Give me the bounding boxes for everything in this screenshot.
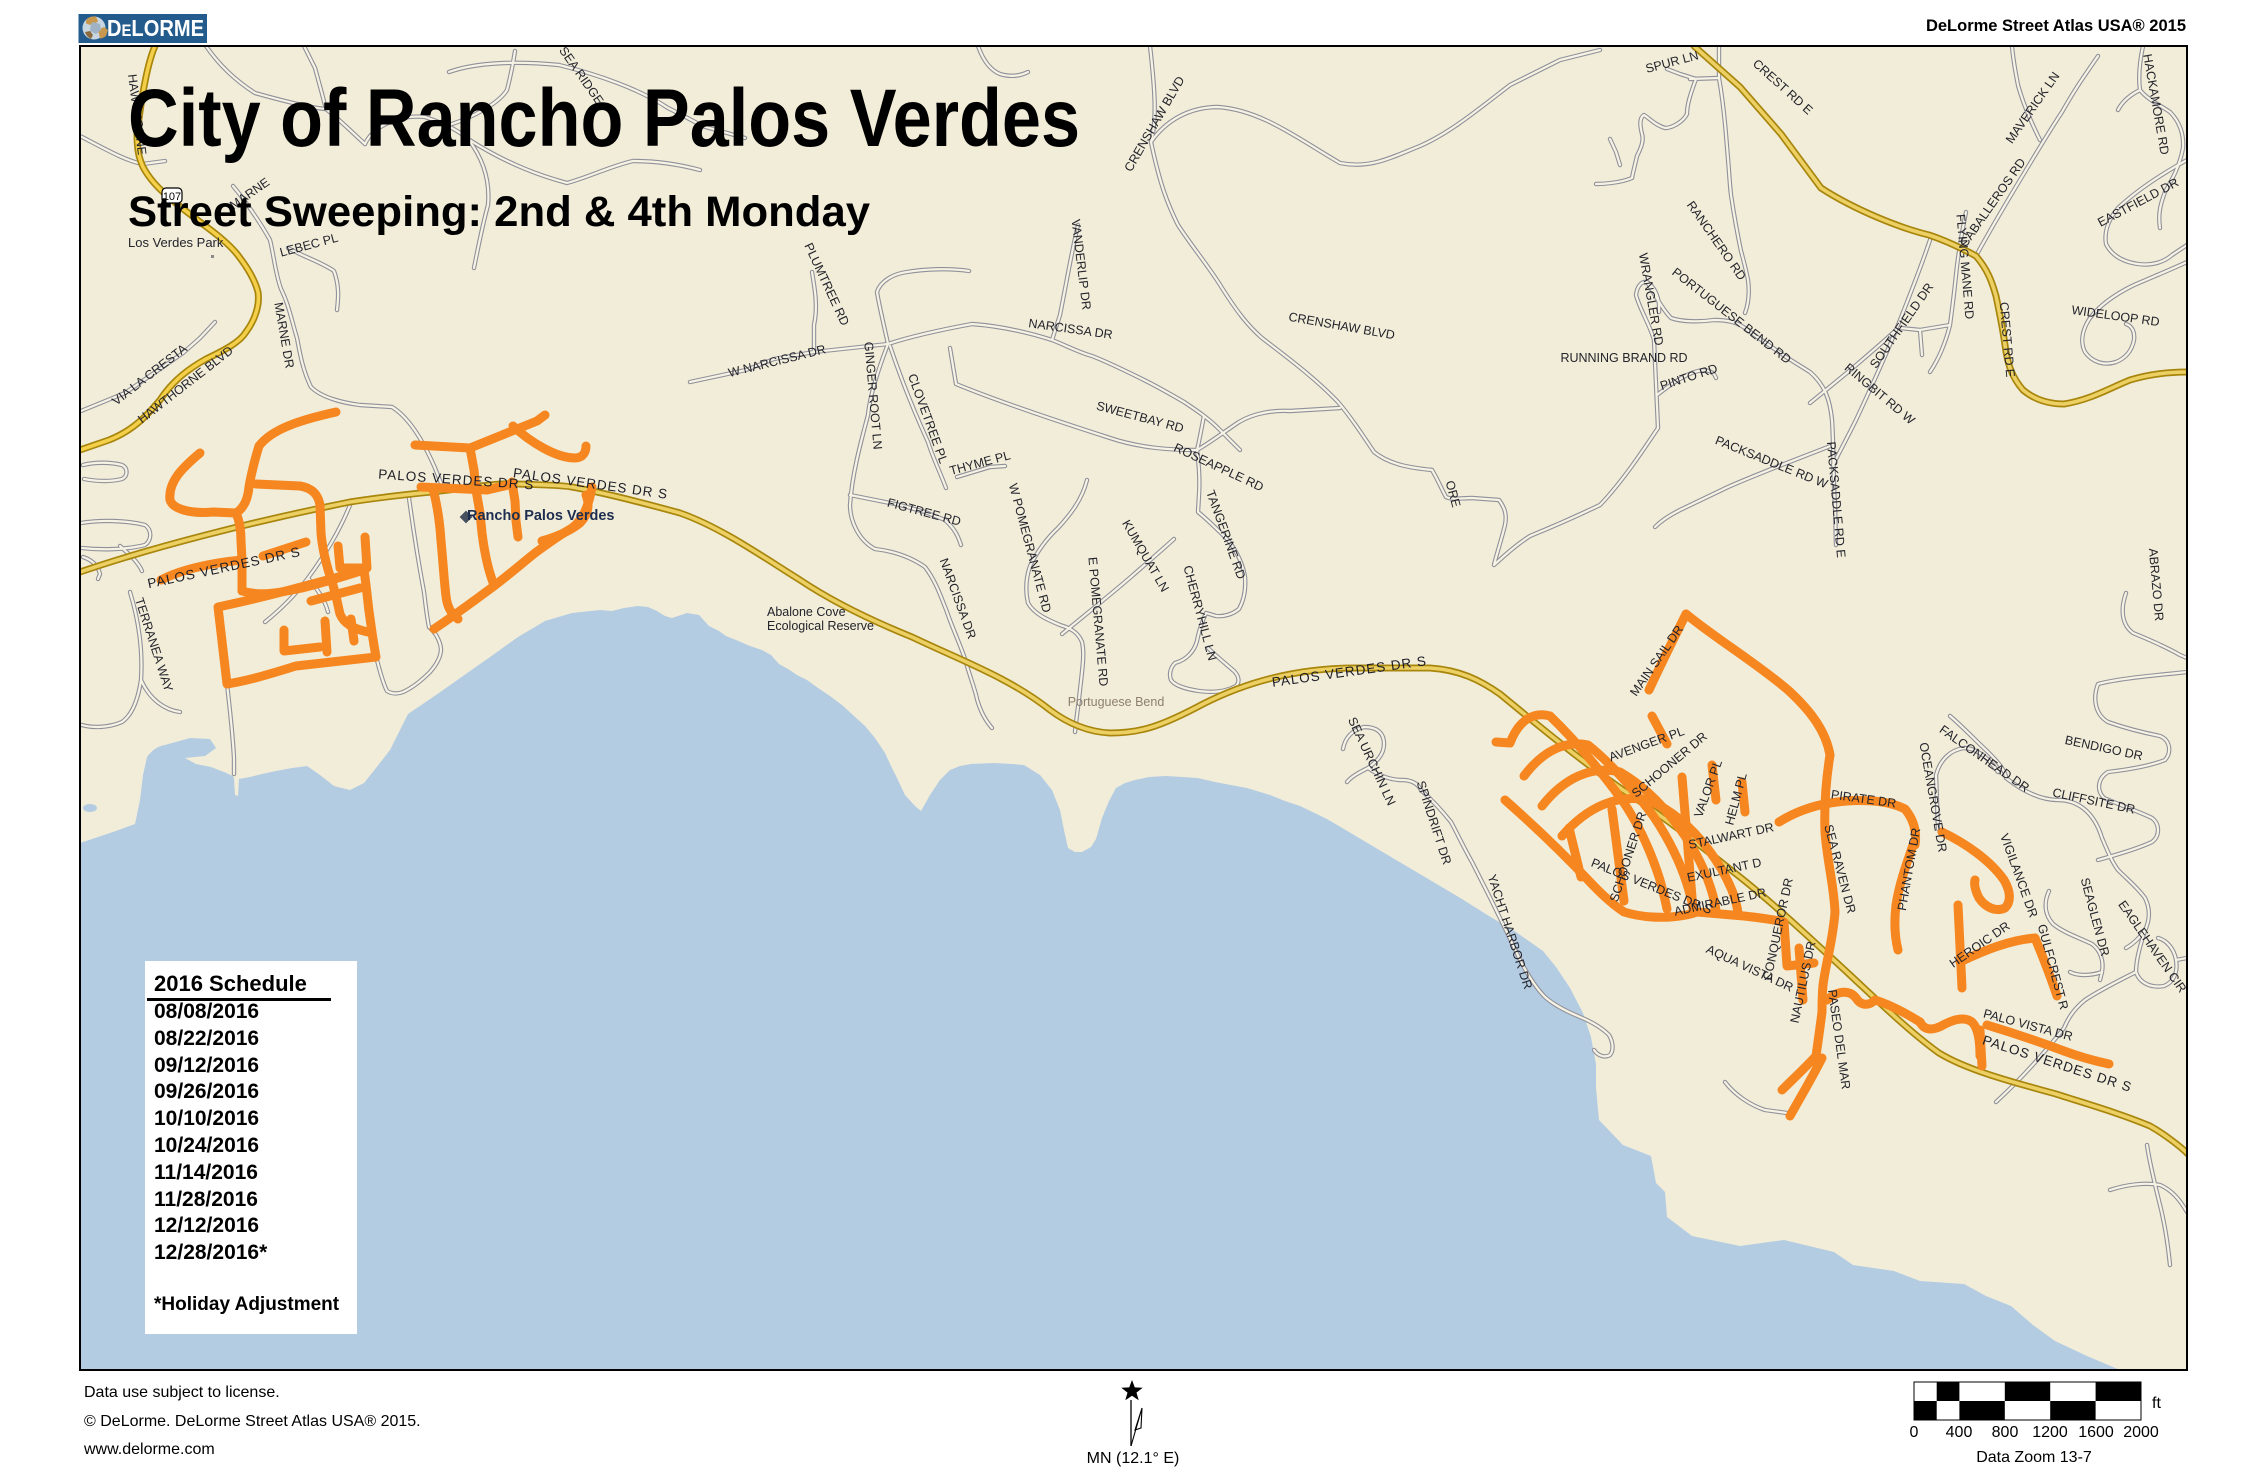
svg-text:*Holiday Adjustment: *Holiday Adjustment bbox=[154, 1294, 340, 1315]
svg-text:DeLorme Street Atlas USA® 2015: DeLorme Street Atlas USA® 2015 bbox=[1926, 17, 2186, 35]
svg-text:400: 400 bbox=[1946, 1424, 1973, 1441]
svg-text:09/12/2016: 09/12/2016 bbox=[154, 1054, 259, 1077]
svg-text:11/14/2016: 11/14/2016 bbox=[154, 1161, 258, 1184]
svg-text:City of Rancho Palos Verdes: City of Rancho Palos Verdes bbox=[128, 73, 1080, 164]
svg-text:2016 Schedule: 2016 Schedule bbox=[154, 971, 307, 996]
svg-text:Rancho Palos Verdes: Rancho Palos Verdes bbox=[467, 508, 614, 524]
svg-text:2000: 2000 bbox=[2123, 1424, 2159, 1441]
svg-text:1200: 1200 bbox=[2032, 1424, 2068, 1441]
svg-text:Data Zoom 13-7: Data Zoom 13-7 bbox=[1976, 1449, 2092, 1466]
svg-text:MN (12.1° E): MN (12.1° E) bbox=[1087, 1450, 1180, 1467]
svg-text:ft: ft bbox=[2152, 1395, 2161, 1412]
svg-text:12/12/2016: 12/12/2016 bbox=[154, 1214, 259, 1237]
svg-text:© DeLorme. DeLorme Street Atla: © DeLorme. DeLorme Street Atlas USA® 201… bbox=[84, 1413, 421, 1430]
svg-text:Street Sweeping: 2nd & 4th Mon: Street Sweeping: 2nd & 4th Monday bbox=[128, 188, 870, 236]
svg-text:08/22/2016: 08/22/2016 bbox=[154, 1027, 259, 1050]
svg-text:08/08/2016: 08/08/2016 bbox=[154, 1000, 259, 1023]
svg-text:Data use subject to license.: Data use subject to license. bbox=[84, 1384, 280, 1401]
svg-text:Abalone Cove: Abalone Cove bbox=[767, 605, 846, 619]
svg-text:10/24/2016: 10/24/2016 bbox=[154, 1134, 259, 1157]
svg-text:Ecological Reserve: Ecological Reserve bbox=[767, 619, 874, 633]
svg-text:Los Verdes Park: Los Verdes Park bbox=[128, 235, 224, 250]
svg-text:0: 0 bbox=[1910, 1424, 1919, 1441]
svg-text:www.delorme.com: www.delorme.com bbox=[83, 1441, 215, 1458]
svg-text:RUNNING BRAND RD: RUNNING BRAND RD bbox=[1560, 351, 1687, 365]
svg-text:800: 800 bbox=[1992, 1424, 2019, 1441]
svg-text:09/26/2016: 09/26/2016 bbox=[154, 1080, 259, 1103]
svg-text:10/10/2016: 10/10/2016 bbox=[154, 1107, 259, 1130]
svg-text:1600: 1600 bbox=[2078, 1424, 2114, 1441]
svg-text:Portuguese Bend: Portuguese Bend bbox=[1068, 695, 1165, 709]
svg-text:11/28/2016: 11/28/2016 bbox=[154, 1188, 258, 1211]
svg-text:12/28/2016*: 12/28/2016* bbox=[154, 1241, 268, 1264]
